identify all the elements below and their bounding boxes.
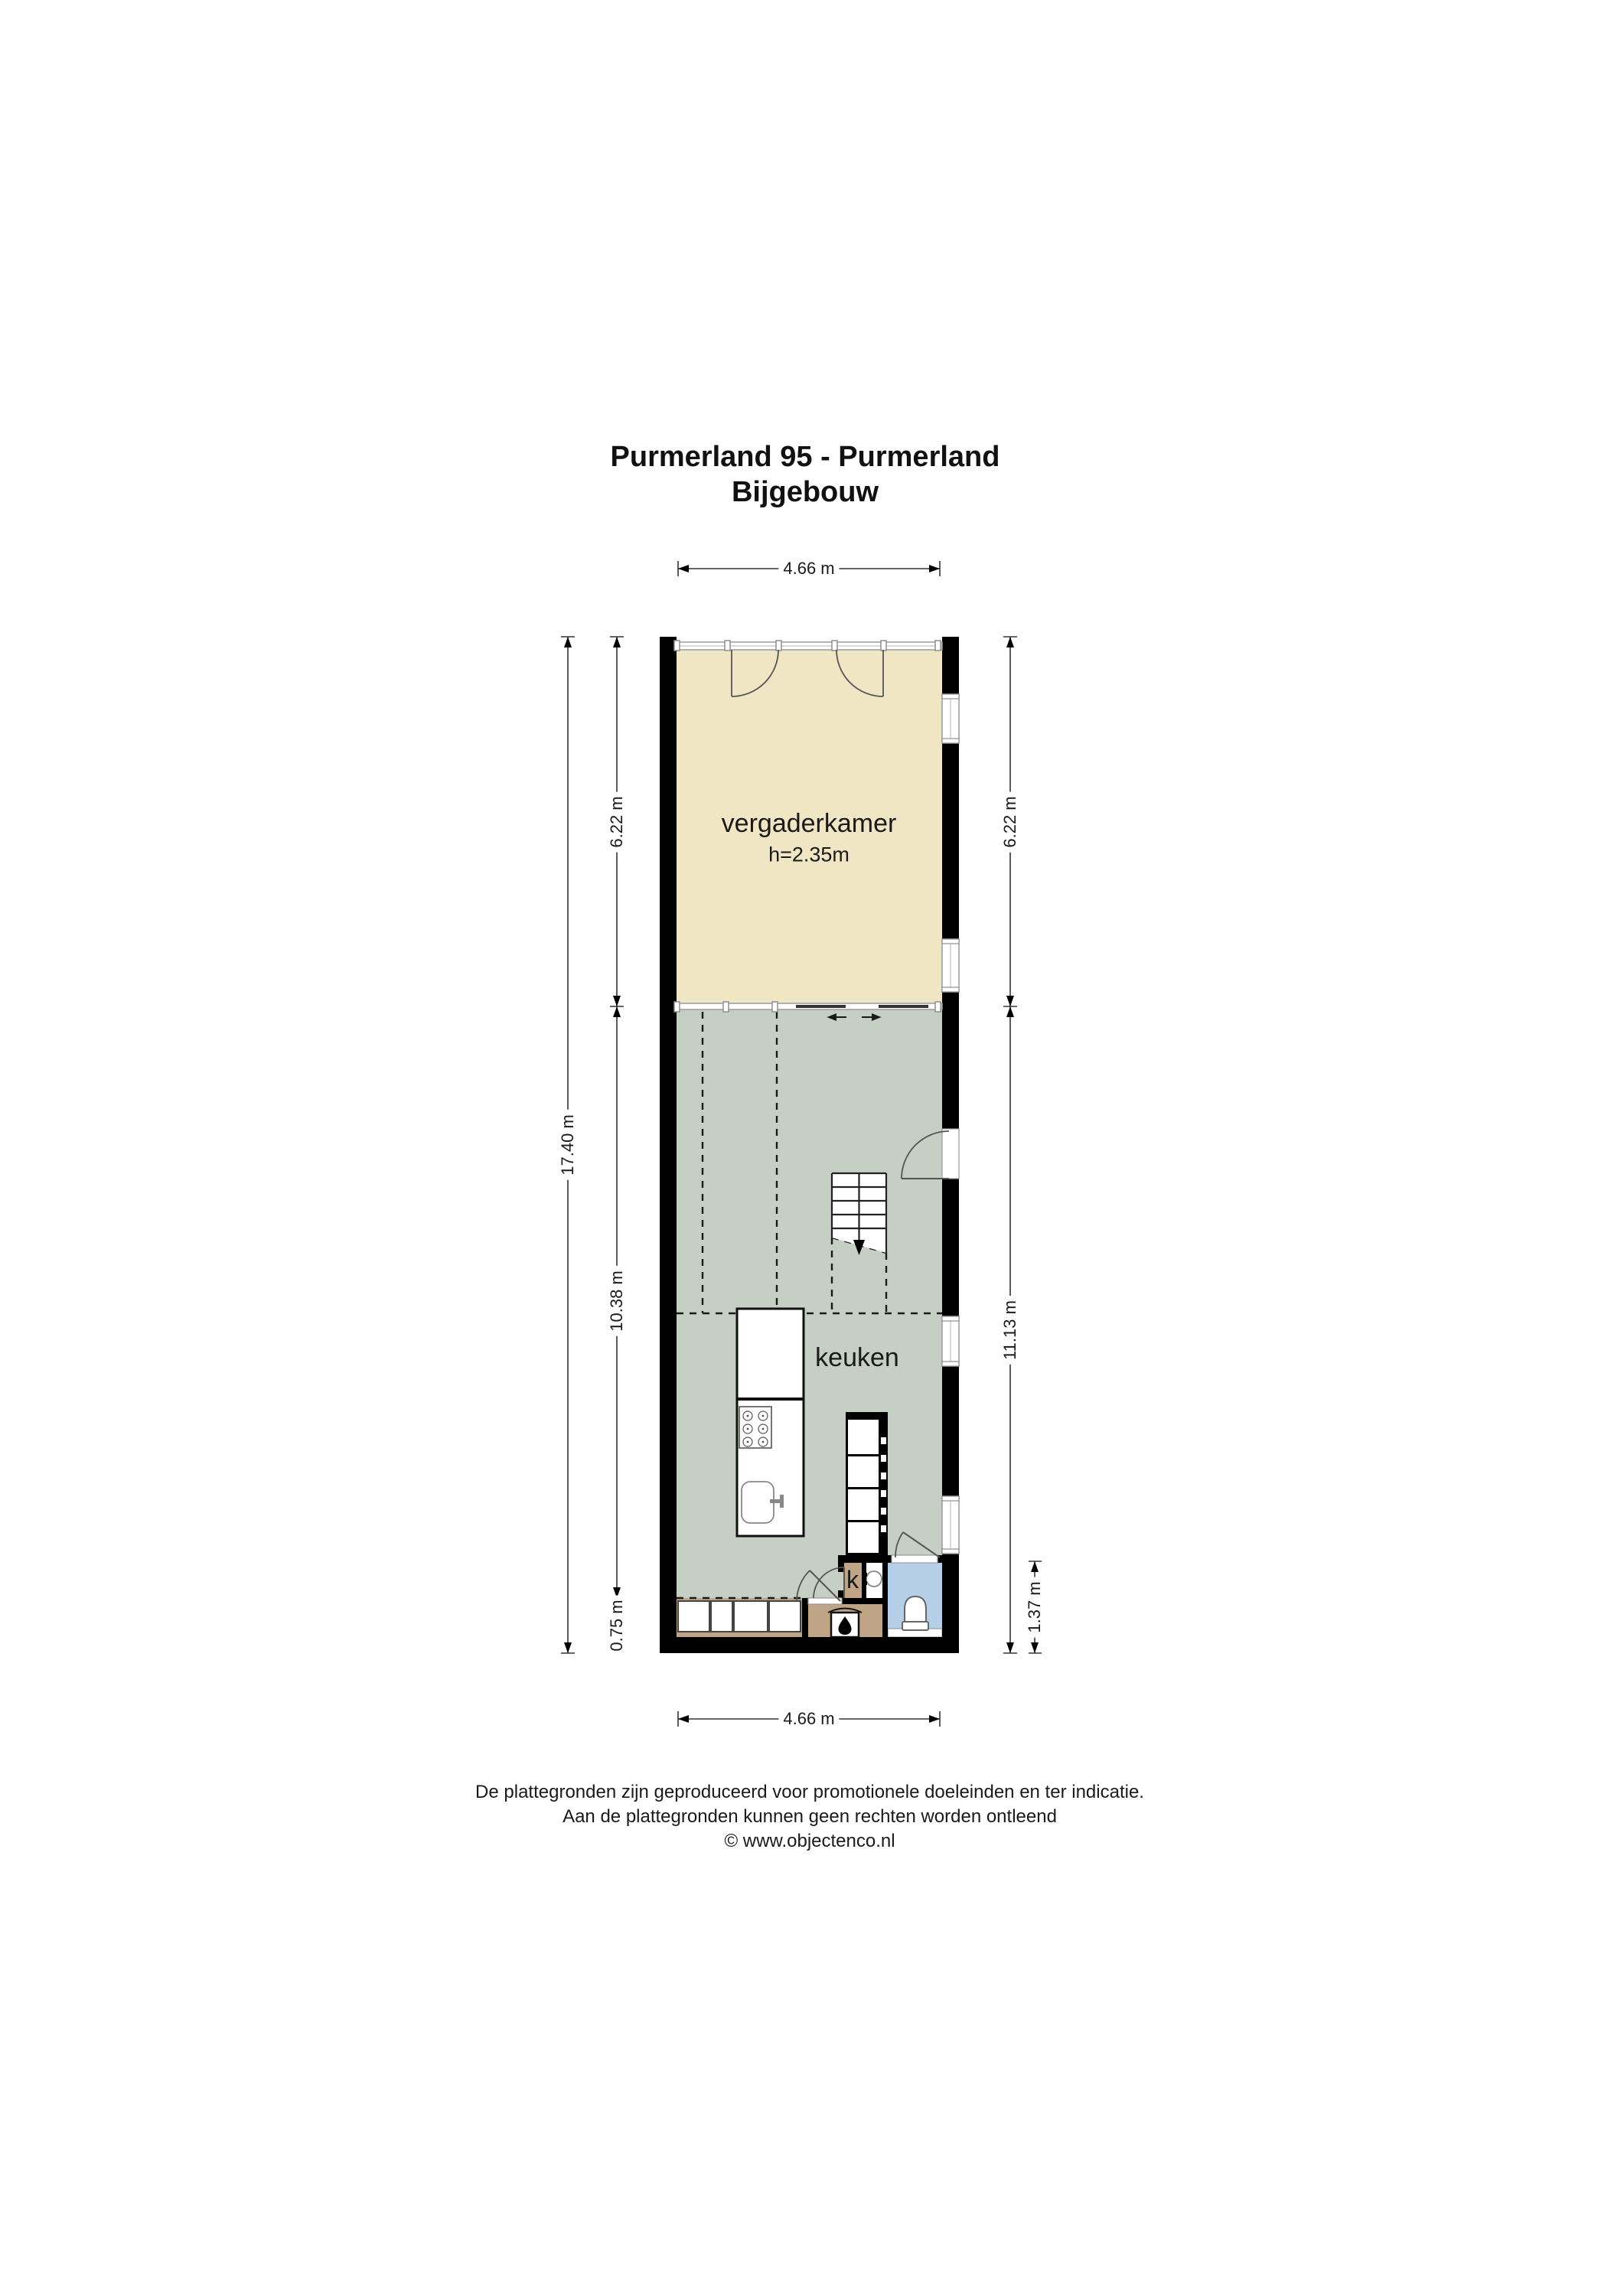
dim-top-width: 4.66 m [778,559,839,579]
fireplace [828,1609,862,1638]
floorplan-page: Purmerland 95 - Purmerland Bijgebouw 4.6… [0,0,1624,2296]
dim-right-bathroom: 1.37 m [1025,1577,1045,1637]
room-label-vergaderkamer: vergaderkamer [722,810,897,837]
dim-bottom-width: 4.66 m [778,1709,839,1729]
footer-copyright: © www.objectenco.nl [724,1831,895,1852]
room-label-keuken: keuken [815,1345,899,1371]
left-wall [660,637,677,1653]
footer-disclaimer-line2: Aan de plattegronden kunnen geen rechten… [563,1806,1057,1828]
toilet-icon [902,1596,928,1630]
window [942,939,959,992]
floors [677,650,942,1637]
room-label-closet: k [846,1567,859,1592]
room-ceiling-height: h=2.35m [768,845,850,866]
dim-right-middle: 11.13 m [1000,1296,1020,1365]
gas-hob-icon [739,1407,771,1448]
counter-cabinets [678,1601,801,1632]
living-kitchen-floor [677,1009,942,1637]
page-title-line2: Bijgebouw [732,476,879,509]
dim-left-total: 17.40 m [558,1110,578,1180]
page-title-line1: Purmerland 95 - Purmerland [611,441,1000,474]
dim-left-top: 6.22 m [607,791,627,852]
window [942,694,959,743]
bottom-wall [660,1637,959,1653]
window [942,1496,959,1554]
footer-disclaimer-line1: De plattegronden zijn geproduceerd voor … [475,1782,1144,1803]
window [942,1316,959,1366]
dim-left-middle: 10.38 m [607,1266,627,1336]
dim-left-bottom: 0.75 m [607,1595,627,1655]
floorplan-drawing [0,0,1624,2296]
kitchen-island [737,1309,804,1536]
dim-right-top: 6.22 m [1000,791,1020,852]
kitchen-tall-unit [846,1412,888,1563]
